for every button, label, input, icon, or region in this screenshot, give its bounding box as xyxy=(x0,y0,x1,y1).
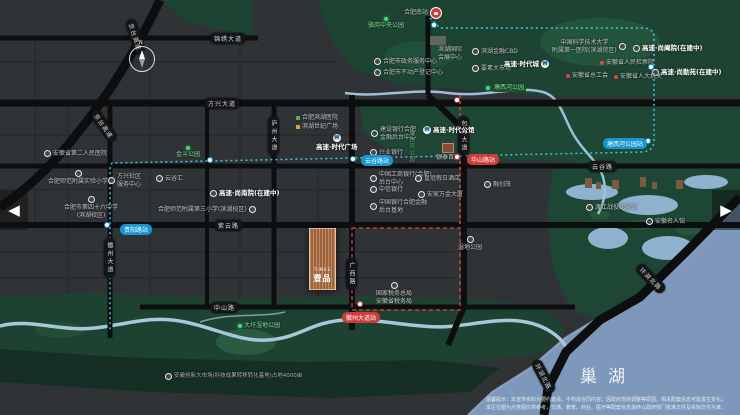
metro-station-node xyxy=(207,157,213,163)
poi-trade-union: 安徽省总工会 xyxy=(566,72,608,80)
poi-binhu-hospital: 合肥滨湖医院 xyxy=(296,114,338,122)
project-logo-cn: 壹品 xyxy=(314,273,332,284)
poi-ring-icon xyxy=(156,175,163,182)
poi-fangxing-center: 方兴社区 服务中心 xyxy=(108,173,141,189)
project-logo: TIMES 壹品 xyxy=(309,228,336,290)
poi-ring-icon xyxy=(108,177,115,184)
school-ring-icon xyxy=(249,206,256,213)
poi-ring-icon xyxy=(484,181,491,188)
station-pill-yungu-rd: 云谷路站 xyxy=(361,155,393,166)
poi-real-estate-center: 合肥市不动产登记中心 xyxy=(374,69,443,77)
poi-boc-backoffice: 中国银行合肥金融 后台基地 xyxy=(370,199,427,215)
poi-gov-service-center: 合肥市政务服务中心 xyxy=(374,58,437,66)
road-pill-jinxiu-ave: 锦绣大道 xyxy=(210,33,246,44)
metro-m-icon: M xyxy=(333,134,341,142)
poi-third-primary-school: 合肥师范附属第三小学(滨湖校区) xyxy=(158,206,256,214)
poi-ring-icon xyxy=(370,186,377,193)
gov-dot-icon xyxy=(566,74,570,78)
metro-m-icon: M xyxy=(423,126,431,134)
station-pill-huizhou-ave: 徽州大道站 xyxy=(342,312,380,323)
lake-name-label: 巢湖 xyxy=(580,362,636,387)
metro-station-node xyxy=(648,64,654,70)
park-dot-icon xyxy=(186,146,190,150)
map-image-viewer: N 合肥南站 骆岗中央公园 塘西河公园 合肥市政务服务中心 合肥市不动产登记中心… xyxy=(0,0,740,415)
project-logo-en: TIMES xyxy=(314,267,331,272)
poi-ring-icon xyxy=(374,69,381,76)
rail-station-icon xyxy=(430,7,442,19)
poi-intl-expo-center: 滨湖国际 会展中心 xyxy=(438,46,462,62)
road-pill-ziyun-rd: 紫云路 xyxy=(214,220,243,231)
carousel-prev-button[interactable]: ◀ xyxy=(0,190,28,230)
poi-gaosu-shangheyuan: 高速·尚阖院(在建中) xyxy=(633,44,702,52)
poi-sunac-mall: 融创茂 xyxy=(484,181,511,189)
carousel-next-button[interactable]: ▶ xyxy=(712,190,740,230)
compass: N xyxy=(129,46,155,72)
poi-jindou-park: 金斗公园 xyxy=(176,146,200,159)
park-dot-icon xyxy=(486,86,490,90)
gov-dot-icon xyxy=(600,61,604,65)
poi-hefei-south-station: 合肥南站 xyxy=(404,7,442,19)
poi-anjia-tower: 安家万金大厦 xyxy=(418,191,463,199)
metro-station-node xyxy=(431,22,437,28)
station-pill-huashan-rd: 华山路站 xyxy=(467,154,499,165)
mall-building-icon xyxy=(442,143,454,153)
poi-memorial-hall: 渡江战役纪念馆 xyxy=(586,204,637,212)
station-pill-guiyang-rd: 贵阳路站 xyxy=(120,224,152,235)
poi-tangxihe-park: 塘西河公园 xyxy=(486,84,526,92)
poi-ring-icon xyxy=(472,48,479,55)
poi-century-plaza: 滨湖世纪广场 xyxy=(296,123,338,131)
poi-ring-icon xyxy=(467,236,474,243)
poi-crowne-hotel: 皇冠假日酒店 xyxy=(415,175,460,183)
poi-gaosu-shangnanyuan: 高速·尚南院(在建中) xyxy=(210,189,279,197)
poi-citic-bank: 中信银行 xyxy=(370,186,403,194)
poi-peoples-congress: 安徽省人大机关 xyxy=(614,73,662,81)
road-pill-fangxing-ave: 方兴大道 xyxy=(204,98,240,109)
poi-binhu-cbd: 滨湖金融CBD xyxy=(472,48,518,56)
metro-station-node xyxy=(104,222,110,228)
poi-ring-icon xyxy=(374,58,381,65)
poi-ring-icon xyxy=(472,65,479,72)
poi-wetland-park: 湿地公园 xyxy=(458,236,482,252)
poi-tangxihe-park-vertical: 塘西河公园 xyxy=(407,130,414,163)
road-pill-guangxi-rd: 广西路 xyxy=(346,258,357,290)
poi-ring-icon xyxy=(619,43,626,50)
park-dot-icon xyxy=(384,17,388,21)
metro-station-node-red xyxy=(357,301,363,307)
poi-ring-icon xyxy=(44,150,51,157)
poi-ring-icon xyxy=(165,373,172,380)
poi-gaosu-times-mansion: M 高速·时代公馆 xyxy=(423,126,474,134)
poi-ring-icon xyxy=(371,130,378,137)
chevron-right-icon: ▶ xyxy=(720,201,732,219)
poi-ustc-hospital: 中国科学技术大学 附属第一医院(滨湖院区) xyxy=(552,39,626,55)
poi-ring-icon xyxy=(633,45,640,52)
disclaimer-text: 温馨提示：本宣传资料为要约邀请，不构成合同内容；因政府规划调整等原因，相关配套信… xyxy=(486,396,736,412)
metro-station-node-red xyxy=(454,97,460,103)
poi-ring-icon xyxy=(418,191,425,198)
poi-ring-icon xyxy=(370,175,377,182)
poi-celebrity-hall: 安徽名人馆 xyxy=(646,218,685,226)
poi-luogang-park: 骆岗中央公园 xyxy=(368,17,404,30)
hospital-square-icon xyxy=(296,116,300,120)
metro-m-icon: M xyxy=(541,60,549,68)
poi-gaosu-times-city: 高速·时代城 M xyxy=(504,60,549,68)
poi-tax-bureau: 国家税务总局 安徽省税务局 xyxy=(376,282,412,306)
mall-square-icon xyxy=(296,125,300,129)
poi-gaosu-times-square: M 高速·时代广场 xyxy=(316,134,357,151)
poi-ring-icon xyxy=(370,203,377,210)
road-pill-luzhou-ave: 庐州大道 xyxy=(268,116,279,156)
poi-ring-icon xyxy=(415,175,422,182)
poi-no46-middle-school: 合肥市第四十六中学 (滨湖校区) xyxy=(64,196,118,220)
poi-ring-icon xyxy=(586,204,593,211)
metro-station-node-red xyxy=(454,154,460,160)
road-pill-yungu-rd: 云谷路 xyxy=(588,161,617,172)
poi-normal-primary-school: 合肥师范附属实验小学 xyxy=(48,170,108,186)
poi-gaosu-shangqinyuan: 高速·尚勤苑(在建中) xyxy=(652,68,721,76)
road-pill-huizhou-ave: 徽州大道 xyxy=(104,238,115,278)
metro-station-node xyxy=(350,156,356,162)
chevron-left-icon: ◀ xyxy=(8,201,20,219)
poi-procuratorate: 安徽省人民检察院 xyxy=(600,59,654,67)
compass-needle-icon xyxy=(139,50,145,59)
park-dot-icon xyxy=(238,324,242,328)
road-pill-zhongshan-rd: 中山路 xyxy=(210,302,239,313)
compass-north-label: N xyxy=(139,40,143,46)
poi-ring-icon xyxy=(391,282,398,289)
poi-yungu-hui: 云谷汇 xyxy=(156,175,183,183)
poi-innovation-market: 安徽创新大市场(科技成果转移转化基地)占地4000亩 xyxy=(165,373,302,380)
school-ring-icon xyxy=(88,196,95,203)
poi-ring-icon xyxy=(210,190,217,197)
gov-dot-icon xyxy=(614,75,618,79)
station-pill-tangxihe-park: 塘西河公园站 xyxy=(603,138,647,149)
school-ring-icon xyxy=(75,170,82,177)
poi-dawei-wetland: 大圩湿地公园 xyxy=(238,322,280,330)
poi-ring-icon xyxy=(646,218,653,225)
poi-second-hospital: 安徽省第二人民医院 xyxy=(44,150,107,158)
